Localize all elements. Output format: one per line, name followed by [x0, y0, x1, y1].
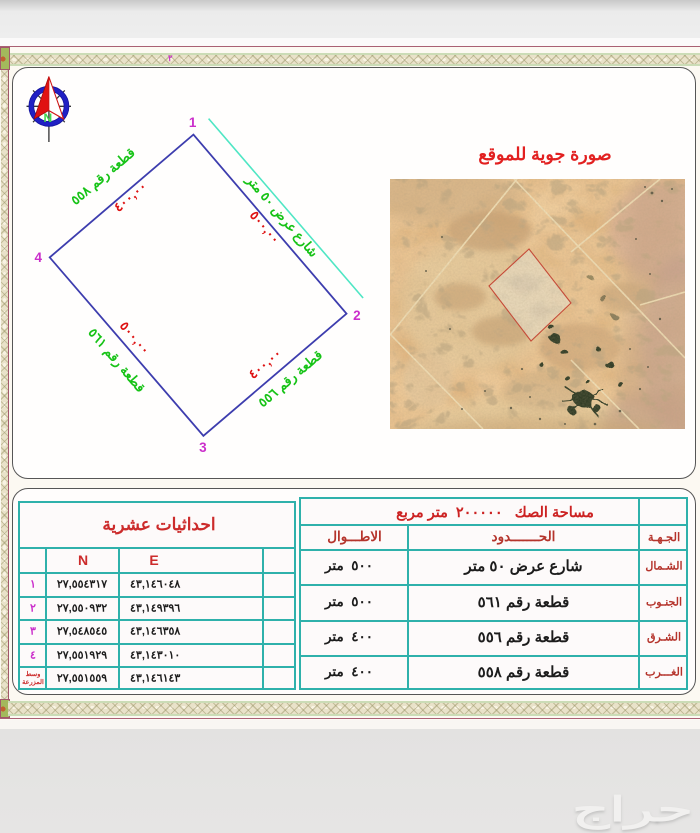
svg-text:2: 2 — [353, 308, 361, 323]
svg-text:3: 3 — [199, 440, 207, 455]
svg-text:حراج: حراج — [572, 791, 693, 830]
svg-text:٤٠٠,٠٠: ٤٠٠,٠٠ — [245, 345, 284, 381]
svg-text:٤٠٠,٠٠: ٤٠٠,٠٠ — [111, 178, 150, 214]
svg-text:٥٠٠,٠٠: ٥٠٠,٠٠ — [117, 318, 153, 357]
svg-text:صورة جوية للموقع: صورة جوية للموقع — [478, 144, 611, 165]
svg-text:4: 4 — [35, 250, 43, 265]
svg-text:N: N — [43, 111, 52, 125]
svg-text:1: 1 — [189, 115, 197, 130]
